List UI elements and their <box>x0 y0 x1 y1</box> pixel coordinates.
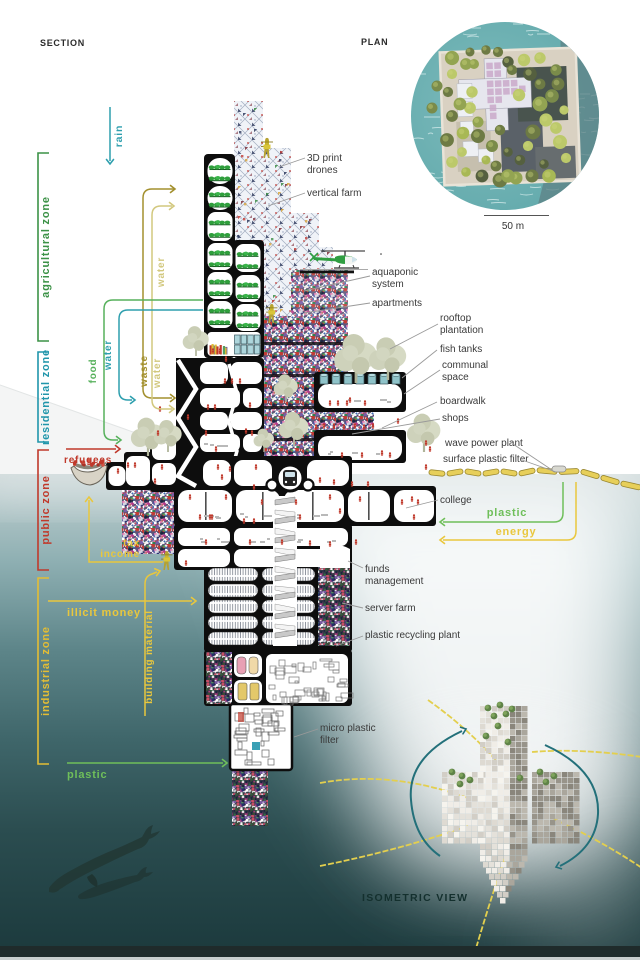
svg-text:space: space <box>442 372 469 383</box>
svg-text:plantation: plantation <box>440 325 483 336</box>
svg-text:refugees: refugees <box>64 455 112 466</box>
svg-text:server farm: server farm <box>365 603 416 614</box>
svg-text:funds: funds <box>365 564 389 575</box>
svg-text:college: college <box>440 495 472 506</box>
svg-text:rain: rain <box>113 125 125 147</box>
svg-text:boardwalk: boardwalk <box>440 396 487 407</box>
svg-text:wave power plant: wave power plant <box>444 438 523 449</box>
svg-text:50 m: 50 m <box>502 221 524 232</box>
svg-text:income: income <box>100 549 140 560</box>
svg-text:fish tanks: fish tanks <box>440 344 482 355</box>
svg-text:SECTION: SECTION <box>40 38 85 48</box>
svg-text:water: water <box>152 358 163 389</box>
svg-text:filter: filter <box>320 735 340 746</box>
svg-text:apartments: apartments <box>372 298 422 309</box>
svg-text:industrial zone: industrial zone <box>40 626 52 716</box>
svg-text:drones: drones <box>307 165 338 176</box>
svg-text:food: food <box>88 359 99 384</box>
svg-text:plastic: plastic <box>487 507 527 519</box>
svg-text:energy: energy <box>496 526 537 538</box>
svg-text:ISOMETRIC VIEW: ISOMETRIC VIEW <box>362 892 468 904</box>
svg-text:waste: waste <box>139 355 150 388</box>
svg-text:public zone: public zone <box>40 475 52 544</box>
svg-text:micro plastic: micro plastic <box>320 723 376 734</box>
svg-text:shops: shops <box>442 413 469 424</box>
svg-text:system: system <box>372 279 404 290</box>
svg-text:aquaponic: aquaponic <box>372 267 418 278</box>
svg-text:surface plastic filter: surface plastic filter <box>443 454 529 465</box>
svg-text:communal: communal <box>442 360 488 371</box>
svg-text:plastic: plastic <box>67 769 107 781</box>
svg-text:water: water <box>156 257 167 288</box>
svg-text:plastic recycling plant: plastic recycling plant <box>365 630 460 641</box>
svg-text:3D print: 3D print <box>307 153 342 164</box>
svg-text:building material: building material <box>144 610 155 704</box>
svg-text:management: management <box>365 576 424 587</box>
svg-text:PLAN: PLAN <box>361 37 388 47</box>
svg-text:rooftop: rooftop <box>440 313 472 324</box>
svg-text:agricultural zone: agricultural zone <box>40 196 52 298</box>
svg-text:vertical farm: vertical farm <box>307 188 361 199</box>
svg-text:tax: tax <box>123 538 140 549</box>
svg-text:residential zone: residential zone <box>40 349 52 445</box>
svg-text:illicit money: illicit money <box>67 607 141 619</box>
svg-text:water: water <box>103 340 114 371</box>
